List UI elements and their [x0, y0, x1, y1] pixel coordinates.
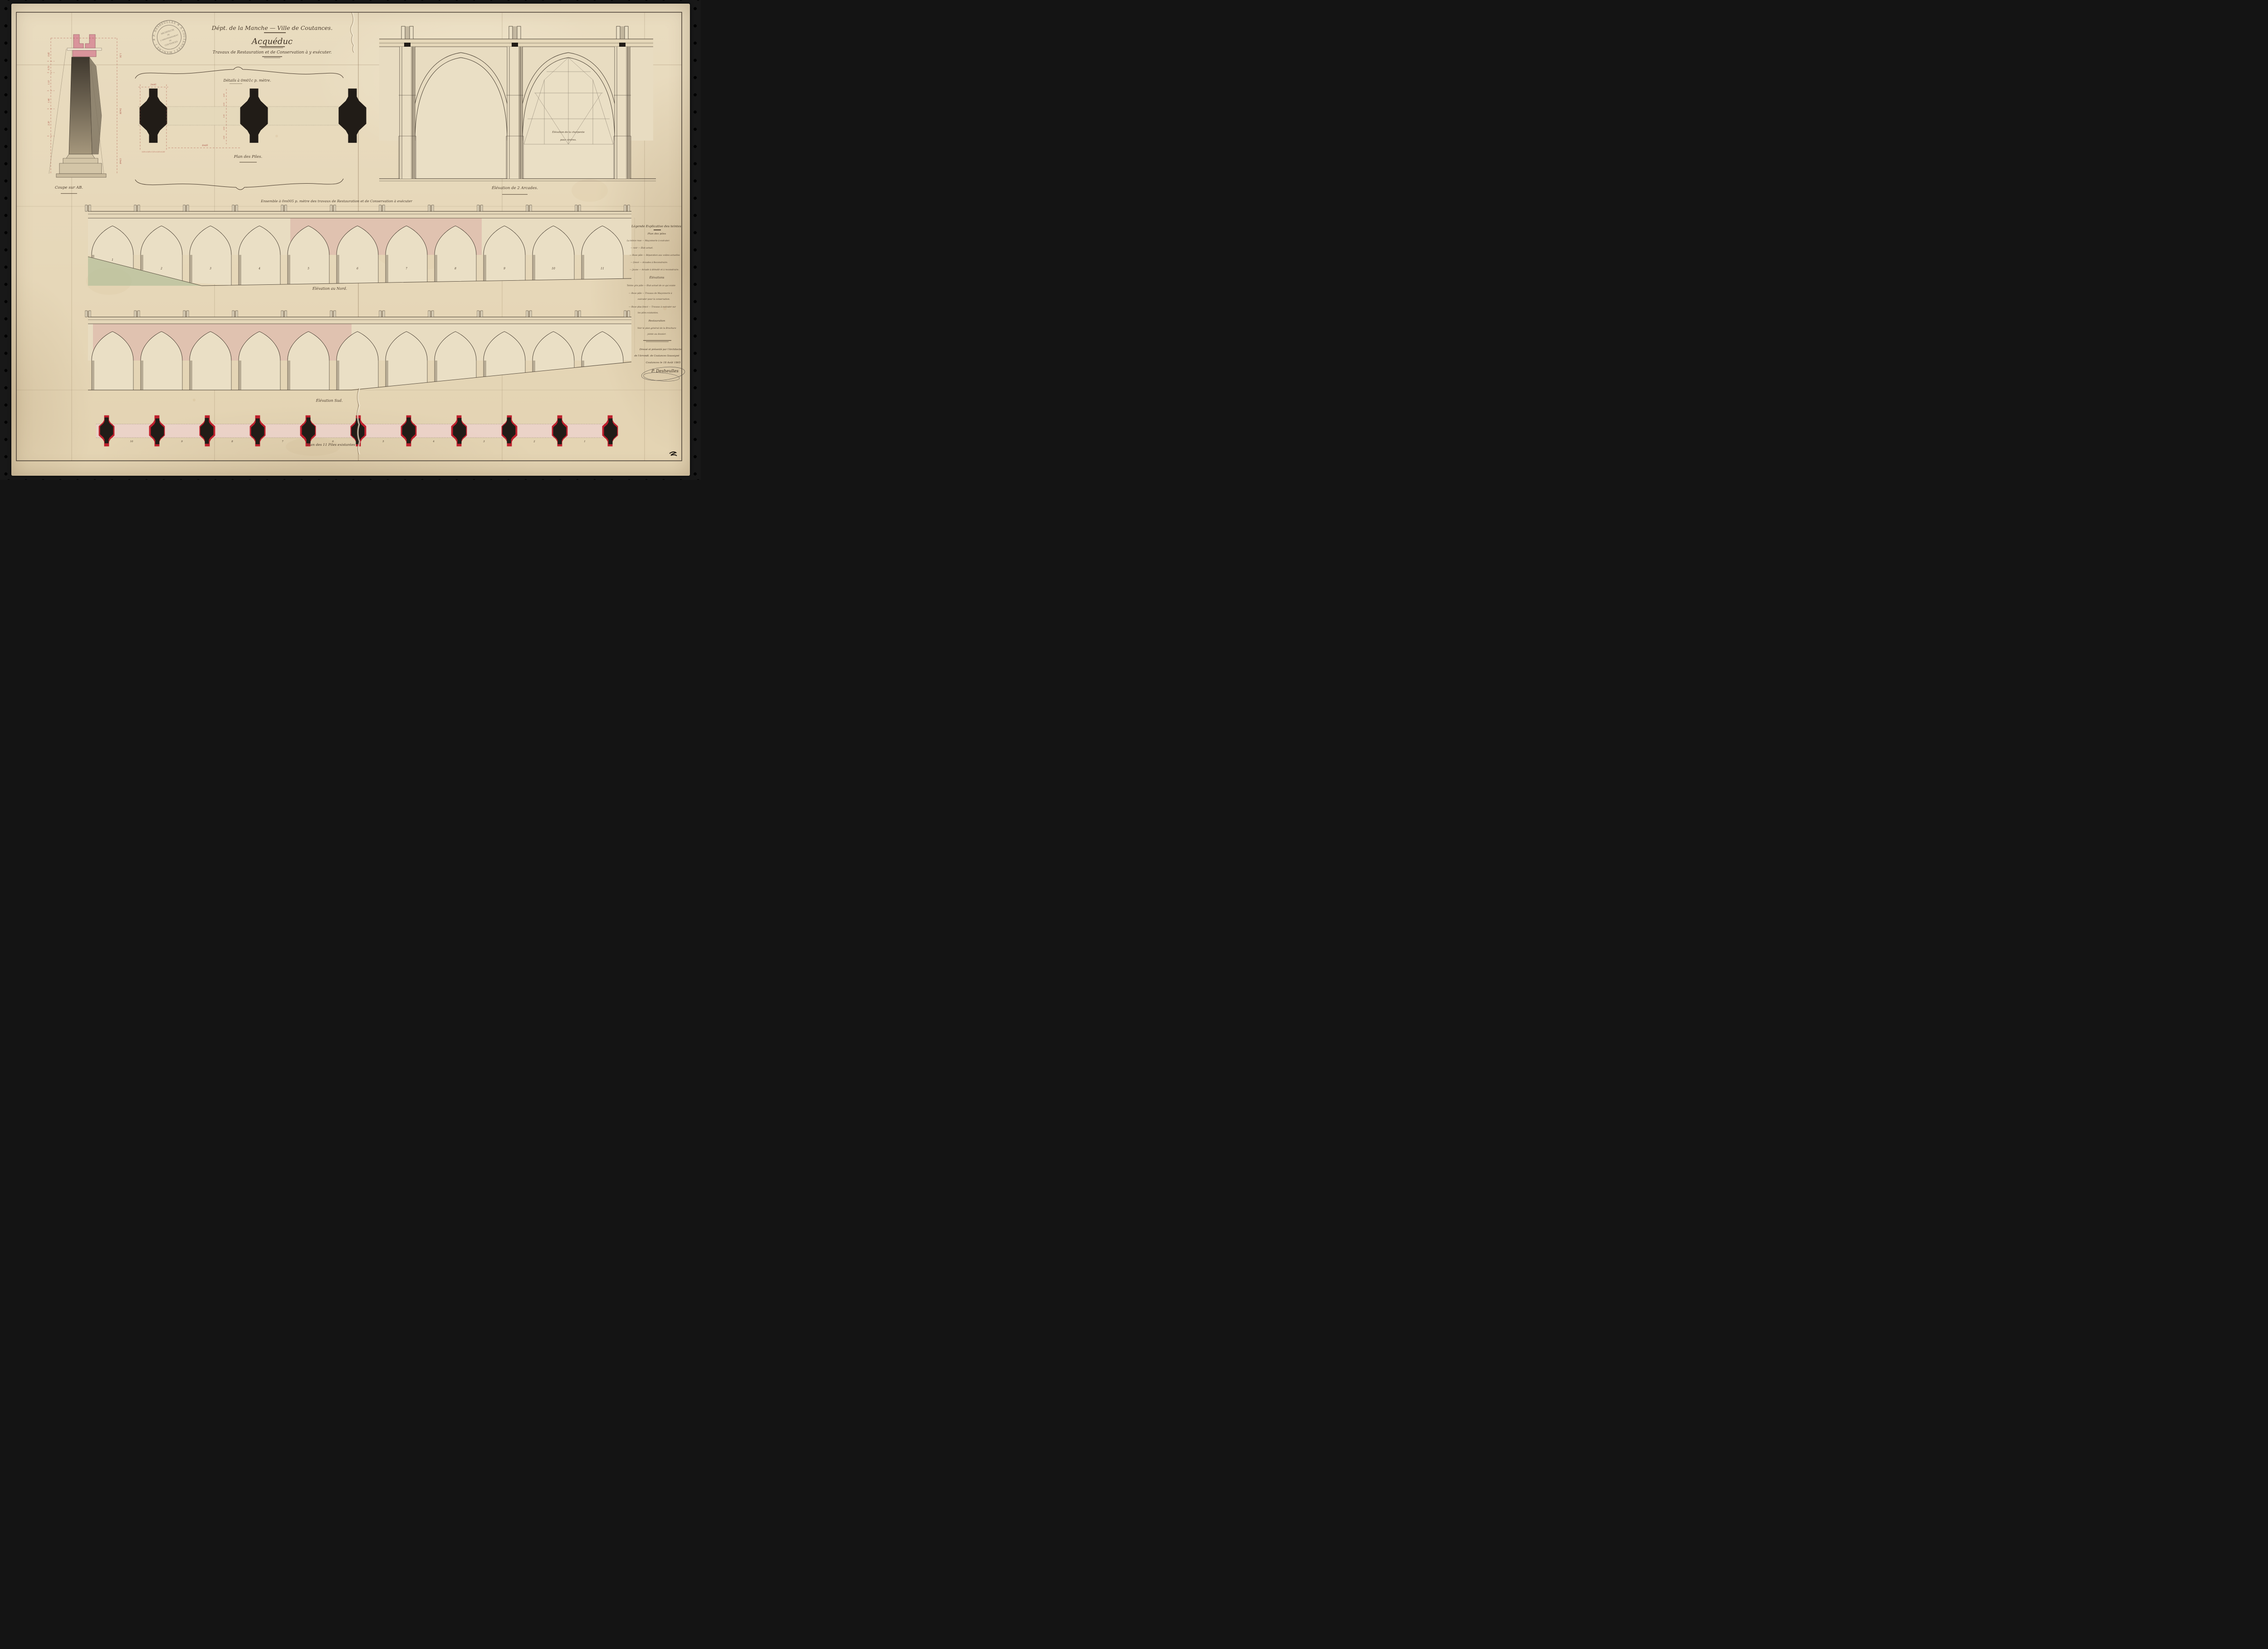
pier-existing-black	[402, 418, 415, 444]
sud-label: Élévation Sud.	[315, 399, 342, 403]
bay-number: 4	[432, 440, 435, 443]
pier-existing-black	[251, 419, 264, 444]
title-dept-line: Dépt. de la Manche — Ville de Coutances.	[211, 24, 332, 31]
signature-flourish	[641, 365, 685, 382]
legend-title: Légende Explicative des teintes.	[631, 224, 682, 228]
stamp-line: COUTANCES	[165, 41, 178, 47]
arch-number: 1	[112, 259, 113, 262]
bay-number: 9	[181, 440, 183, 443]
coupe-dim: 5m38	[119, 108, 122, 114]
pier-base	[59, 154, 102, 174]
arcades-label: Élévation de 2 Arcades.	[491, 185, 538, 190]
corner-mark	[670, 452, 677, 456]
legend-row: exécuter pour la conservation.	[638, 298, 670, 301]
title-block: Dépt. de la Manche — Ville de Coutances.…	[211, 24, 332, 58]
ensemble-scale-label: Ensemble à 0m005 p. mètre des travaux de…	[260, 199, 412, 203]
pier-capstone	[619, 43, 626, 47]
pier-existing-black	[503, 418, 516, 444]
plan-dim: 0.93	[223, 102, 225, 106]
channel-wall-section	[85, 34, 95, 48]
pier-existing-black	[604, 419, 617, 444]
legend-row: — foncé — Arcades à Reconstruire.	[631, 261, 668, 264]
arch-number: 6	[357, 267, 358, 270]
details-underline	[230, 83, 242, 84]
legend-row: Teinte gris pâle — État actuel de ce qui…	[627, 283, 675, 287]
plan-dim: 6m85	[202, 144, 208, 147]
coupe-dim: 13m8	[119, 158, 122, 164]
bay-number: 1	[584, 440, 586, 443]
legend-row: La teinte rose — Maçonnerie à exécuter.	[626, 239, 670, 242]
pier-capstone	[404, 43, 411, 47]
title-subtitle: Travaux de Restauration et de Conservati…	[213, 50, 332, 55]
legend-row: les piles existantes.	[638, 312, 659, 314]
plan-dim: 0,50 x 0,65 x 1,15 x 0,50 x 0,50	[142, 151, 165, 153]
arch-number: 5	[308, 267, 309, 270]
legend-footer: jointe au dossier.	[647, 333, 666, 336]
legend-row: — Rose pâle — Réparation aux voûtes actu…	[630, 254, 680, 257]
details-scale-label: Détails à 0m01c p. mètre.	[223, 78, 271, 83]
coupe-dim: 0.85	[48, 52, 50, 57]
pier-capstone	[512, 43, 518, 47]
pier-plan-cross	[339, 88, 367, 143]
charpente-label: pour cintres.	[560, 139, 577, 141]
pier-plan-cross	[140, 88, 167, 143]
arch-number: 8	[455, 267, 456, 270]
signature-block: Dressé et présenté par l'Architecte de l…	[634, 348, 685, 382]
legend-row: — noir — État actuel.	[631, 246, 654, 249]
plan-dim: 0.93	[223, 127, 225, 130]
arch-number: 3	[210, 267, 211, 270]
bay-number: 3	[483, 440, 485, 443]
elevation-2-arcades: Élévation de la charpente pour cintres. …	[379, 26, 656, 195]
legend-footer: Restauration	[648, 320, 665, 322]
pier-plan-details: 3m456m850,50 x 0,65 x 1,15 x 0,50 x 0,50…	[138, 83, 367, 153]
plan-dim: 3m45	[150, 83, 156, 86]
bay-number: 8	[231, 440, 233, 443]
nord-label: Élévation au Nord.	[312, 287, 347, 291]
elevation-nord: 1234567891011	[85, 205, 631, 286]
bay-number: 2	[533, 440, 535, 443]
pier-existing-black	[151, 419, 164, 444]
pier-existing-black	[553, 419, 567, 444]
arch-number: 9	[503, 267, 505, 270]
arch-number: 4	[258, 267, 260, 270]
stamp-line: DE	[169, 39, 172, 42]
legend-footer: Voir le plan général de la Brochure	[637, 327, 676, 330]
drawing-svg: ✳ P. DESHEULLES ✳ A COUTANCES ( MANCHE )…	[0, 0, 701, 480]
coupe-dim: 1.10	[48, 80, 50, 85]
pier-existing-black	[453, 418, 466, 444]
pier-plan-cross	[240, 88, 268, 143]
charpente-label: Élévation de la charpente	[552, 130, 585, 134]
plan-des-piles-underline	[240, 162, 257, 162]
legend-row: — Jaune — Arcade à démolir et à reconstr…	[630, 268, 679, 271]
arch-number: 7	[406, 267, 407, 270]
legend-row: — Rose plus foncé — Travaux à exécuter s…	[629, 305, 676, 308]
coupe-dim: 1.56	[119, 53, 122, 58]
stamp-line: DE	[167, 33, 170, 36]
signature-line: Dressé et présenté par l'Architecte	[639, 348, 681, 351]
coupe-label: Coupe sur AB.	[55, 185, 83, 190]
title-main: Acquéduc	[251, 37, 293, 46]
arch-number: 10	[552, 267, 555, 270]
bay-number: 5	[382, 440, 384, 443]
pier-existing-black	[200, 418, 214, 444]
plan-existantes-label: Plan des 11 Piles existantes	[307, 443, 355, 447]
coupe-dim: 0.70	[48, 66, 50, 70]
coupe-sur-ab: 0.85 0.70 1.10 1.48 2.30 1.56 5m38 13m8 …	[47, 34, 122, 194]
plan-dim: 1.95	[223, 114, 225, 117]
coupe-dim: 2.30	[48, 121, 50, 126]
signature-date: Coutances le 18 Août 1865	[646, 361, 681, 364]
plan-dim: 0.85	[223, 136, 225, 139]
arch-number: 2	[160, 267, 162, 270]
channel-wall-section	[73, 34, 83, 48]
coupe-dim: 1.48	[48, 98, 50, 103]
bay-number: 10	[130, 440, 133, 443]
arch-number: 11	[601, 267, 604, 270]
signature-line: de l'Arrondt. de Coutances Soussigné	[634, 354, 679, 357]
legend-row: — Rose pâle — Travaux de Maçonnerie à	[629, 292, 672, 295]
pier-shaft-section	[69, 57, 92, 154]
plan-des-piles-label: Plan des Piles.	[234, 155, 262, 159]
pier-existing-black	[100, 418, 113, 444]
legend-section: Élévations	[649, 276, 665, 279]
elevation-sud	[85, 311, 631, 390]
plan-dim: 0.85	[223, 93, 225, 97]
legend-section: Plan des piles	[647, 233, 666, 235]
bay-number: 7	[282, 440, 283, 443]
architect-stamp: ✳ P. DESHEULLES ✳ A COUTANCES ( MANCHE )…	[148, 16, 191, 58]
